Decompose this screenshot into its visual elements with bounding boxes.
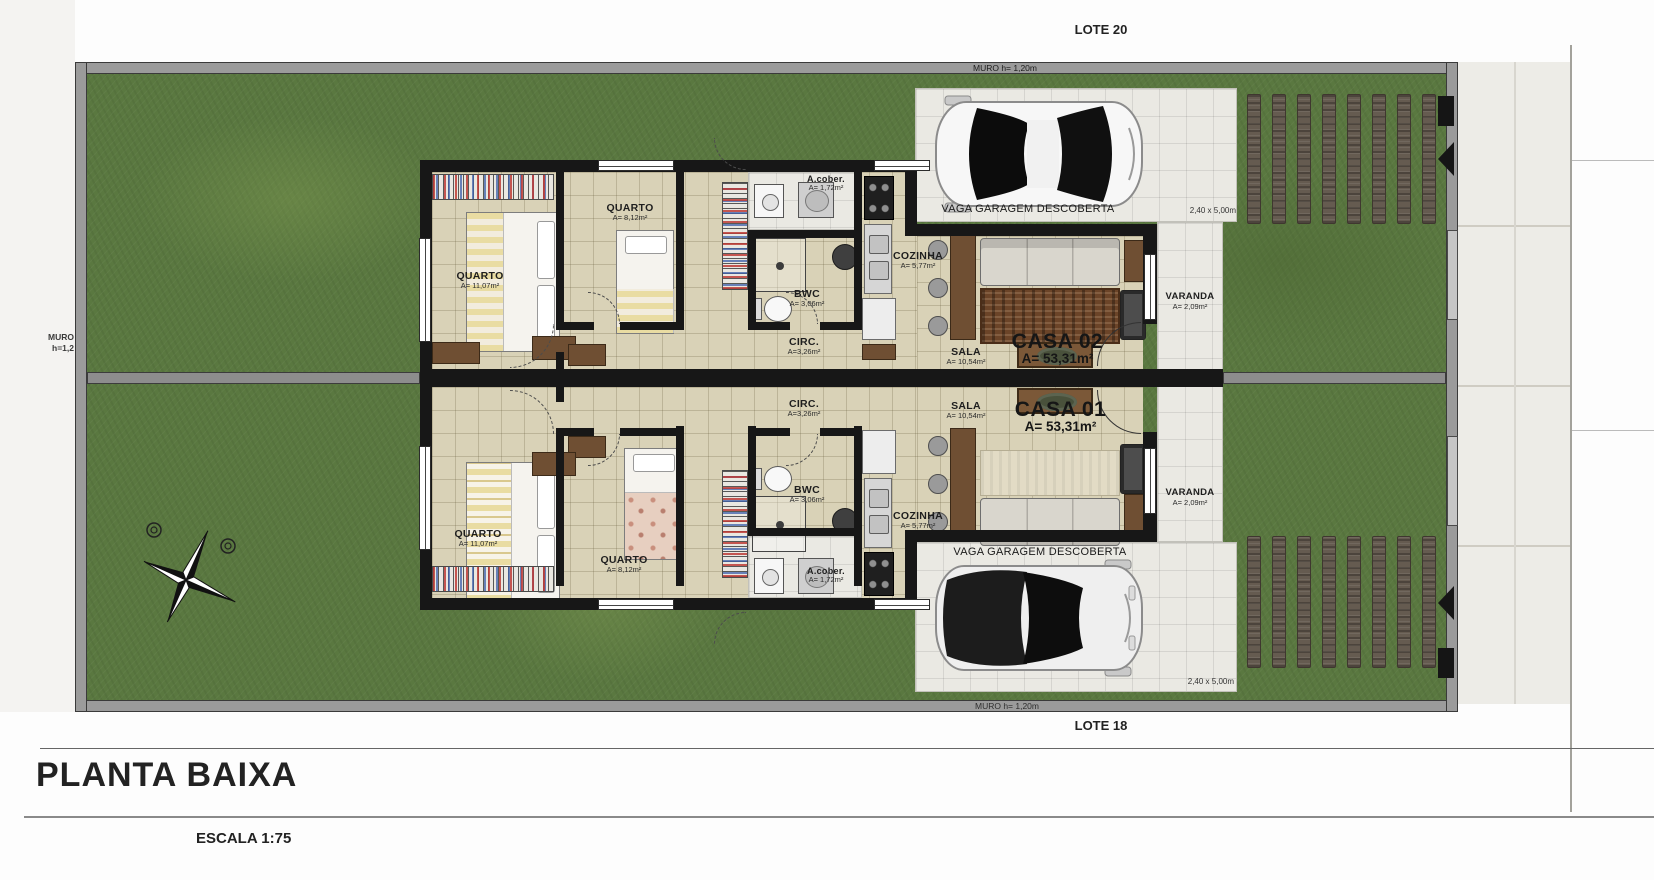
room-area: A= 3,06m²	[778, 496, 836, 505]
single-bed-casa01	[624, 448, 682, 560]
plank	[1397, 94, 1411, 224]
rule-bottom	[24, 816, 1654, 818]
plank-driveway-bottom	[1247, 536, 1437, 668]
muro-top-label: MURO h= 1,20m	[905, 63, 1105, 73]
left-margin	[0, 0, 75, 712]
wardrobe-casa02	[432, 174, 554, 200]
muro-left-line1: MURO	[28, 332, 74, 343]
sidewalk-joint	[1514, 62, 1516, 704]
wall	[676, 426, 684, 586]
page-title: PLANTA BAIXA	[36, 756, 297, 795]
blanket	[625, 492, 681, 559]
wall	[905, 224, 1157, 236]
plank	[1247, 94, 1261, 224]
pillow	[625, 236, 667, 254]
scale-label: ESCALA 1:75	[196, 830, 291, 847]
muro-left-label: MURO h=1,2	[28, 332, 74, 354]
stool	[928, 436, 948, 456]
wall	[556, 436, 564, 586]
pedestrian-gate-bottom	[1447, 436, 1458, 526]
window-quarto2-casa01	[598, 599, 674, 610]
plank	[1347, 536, 1361, 668]
rule-top	[40, 748, 1654, 749]
room-label-quarto1-casa02: QUARTO A= 11,07m²	[444, 270, 516, 291]
wall	[556, 172, 564, 322]
room-area: A= 5,77m²	[878, 262, 958, 271]
sidewalk	[1458, 62, 1570, 704]
wall	[748, 426, 756, 528]
fridge-icon-casa02	[862, 298, 896, 340]
room-area: A= 11,07m²	[442, 540, 514, 549]
plank	[1322, 536, 1336, 668]
plank	[1272, 94, 1286, 224]
plank	[1247, 536, 1261, 668]
room-label-bwc-casa01: BWC A= 3,06m²	[778, 484, 836, 505]
tank-basin	[805, 190, 829, 212]
wall	[748, 230, 862, 238]
rug-casa01	[980, 450, 1120, 496]
wall	[854, 426, 862, 586]
room-label-circ-casa02: CIRC. A=3,26m²	[772, 336, 836, 357]
lot-divider-wall-left	[87, 372, 420, 384]
lote-top-label: LOTE 20	[1036, 22, 1166, 37]
wall	[748, 528, 862, 536]
garage-dims-casa02: 2,40 x 5,00m	[1178, 206, 1236, 215]
room-label-acober-casa01: A.cober. A= 1,72m²	[796, 566, 856, 585]
gate-arrow-icon	[1438, 586, 1454, 620]
pillow	[537, 221, 555, 279]
room-area: A= 8,12m²	[592, 566, 656, 575]
washer-icon-casa01	[754, 558, 784, 594]
wall	[556, 352, 564, 369]
washer-drum	[762, 569, 779, 586]
wardrobe-casa01	[432, 566, 554, 592]
plank	[1297, 94, 1311, 224]
muro-bottom-label: MURO h= 1,20m	[907, 701, 1107, 711]
stool	[928, 474, 948, 494]
sofa-casa02	[980, 238, 1120, 286]
window-sala-casa02	[1144, 254, 1156, 320]
window-quarto1-casa02	[419, 238, 431, 342]
room-label-cozinha-casa01: COZINHA A= 5,77m²	[878, 510, 958, 531]
room-area: A= 2,09m²	[1160, 499, 1220, 508]
room-area: A= 3,06m²	[778, 300, 836, 309]
stove-icon-casa01	[864, 552, 894, 596]
gate-arrow-icon	[1438, 142, 1454, 176]
fridge-icon-casa01	[862, 430, 896, 474]
washer-drum	[762, 194, 779, 211]
plank	[1397, 536, 1411, 668]
hall-shelf-casa02	[722, 182, 748, 290]
room-label-varanda-casa02: VARANDA A= 2,09m²	[1160, 292, 1220, 312]
dresser-casa02	[432, 342, 480, 364]
room-label-bwc-casa02: BWC A= 3,06m²	[778, 288, 836, 309]
wall	[676, 172, 684, 330]
room-area: A= 5,77m²	[878, 522, 958, 531]
room-area: A= 11,07m²	[444, 282, 516, 291]
gate-post	[1438, 96, 1454, 126]
wall	[620, 322, 684, 330]
kitchen-mat-casa02	[862, 344, 896, 360]
window-sala-casa01	[1144, 448, 1156, 514]
bar-counter-casa02	[950, 232, 976, 340]
gate-post	[1438, 648, 1454, 678]
plank	[1322, 94, 1336, 224]
pedestrian-gate-top	[1447, 230, 1458, 320]
wall	[905, 530, 1157, 542]
car-hatchback-icon	[933, 556, 1145, 680]
room-label-varanda-casa01: VARANDA A= 2,09m²	[1160, 488, 1220, 508]
room-area: A= 8,12m²	[598, 214, 662, 223]
garage-label-casa02: VAGA GARAGEM DESCOBERTA	[915, 203, 1141, 215]
garage-dims-casa01: 2,40 x 5,00m	[1152, 677, 1234, 686]
room-area: A= 1,72m²	[796, 576, 856, 585]
pillow	[537, 471, 555, 529]
room-label-circ-casa01: CIRC. A=3,26m²	[772, 398, 836, 419]
window-cozinha-casa01	[874, 599, 930, 610]
washer-icon-casa02	[754, 184, 784, 218]
window-quarto2-casa02	[598, 160, 674, 171]
plank	[1297, 536, 1311, 668]
muro-left-line2: h=1,2	[28, 343, 74, 354]
room-label-acober-casa02: A.cober. A= 1,72m²	[796, 174, 856, 193]
room-area: A=3,26m²	[772, 348, 836, 357]
plank	[1347, 94, 1361, 224]
pillow	[633, 454, 675, 472]
room-area: A= 2,09m²	[1160, 303, 1220, 312]
lot-wall-top	[75, 62, 1458, 74]
stool	[928, 316, 948, 336]
window-quarto1-casa01	[419, 446, 431, 550]
plank	[1422, 536, 1436, 668]
nightstand-casa02	[568, 344, 606, 366]
curb-tick	[1572, 430, 1654, 431]
curb-tick	[1572, 160, 1654, 161]
sink-basin	[869, 489, 889, 508]
room-label-quarto2-casa01: QUARTO A= 8,12m²	[592, 554, 656, 575]
car-sedan-icon	[933, 94, 1145, 214]
stove-icon-casa02	[864, 176, 894, 220]
lote-bottom-label: LOTE 18	[1036, 718, 1166, 733]
wall	[748, 322, 790, 330]
plank	[1422, 94, 1436, 224]
shower-casa02	[752, 238, 806, 292]
garage-label-casa01: VAGA GARAGEM DESCOBERTA	[927, 546, 1153, 558]
stool	[928, 278, 948, 298]
room-area: A=3,26m²	[772, 410, 836, 419]
nightstand-casa01	[532, 452, 576, 476]
floor-plan-canvas: LOTE 20 LOTE 18 MURO h=1,2 MURO h= 1,20m…	[0, 0, 1654, 880]
plank	[1272, 536, 1286, 668]
compass-rose-icon	[118, 508, 248, 628]
window-cozinha-casa02	[874, 160, 930, 171]
plank	[1372, 94, 1386, 224]
wall	[748, 428, 790, 436]
room-label-cozinha-casa02: COZINHA A= 5,77m²	[878, 250, 958, 271]
wall	[748, 230, 756, 330]
wall	[556, 387, 564, 402]
room-label-quarto1-casa01: QUARTO A= 11,07m²	[442, 528, 514, 549]
room-label-quarto2-casa02: QUARTO A= 8,12m²	[598, 202, 662, 223]
hall-shelf-casa01	[722, 470, 748, 578]
lot-divider-wall-right	[1223, 372, 1446, 384]
wall	[854, 172, 862, 330]
wall	[620, 428, 684, 436]
plank-driveway-top	[1247, 94, 1437, 224]
party-wall	[420, 369, 1223, 387]
casa02-area: A= 53,31m²	[975, 351, 1140, 366]
shower-head	[776, 262, 784, 270]
single-bed-casa02	[616, 230, 674, 334]
lot-wall-bottom	[75, 700, 1458, 712]
lot-wall-left	[75, 62, 87, 712]
plank	[1372, 536, 1386, 668]
casa01-area: A= 53,31m²	[978, 419, 1143, 434]
room-area: A= 1,72m²	[796, 184, 856, 193]
